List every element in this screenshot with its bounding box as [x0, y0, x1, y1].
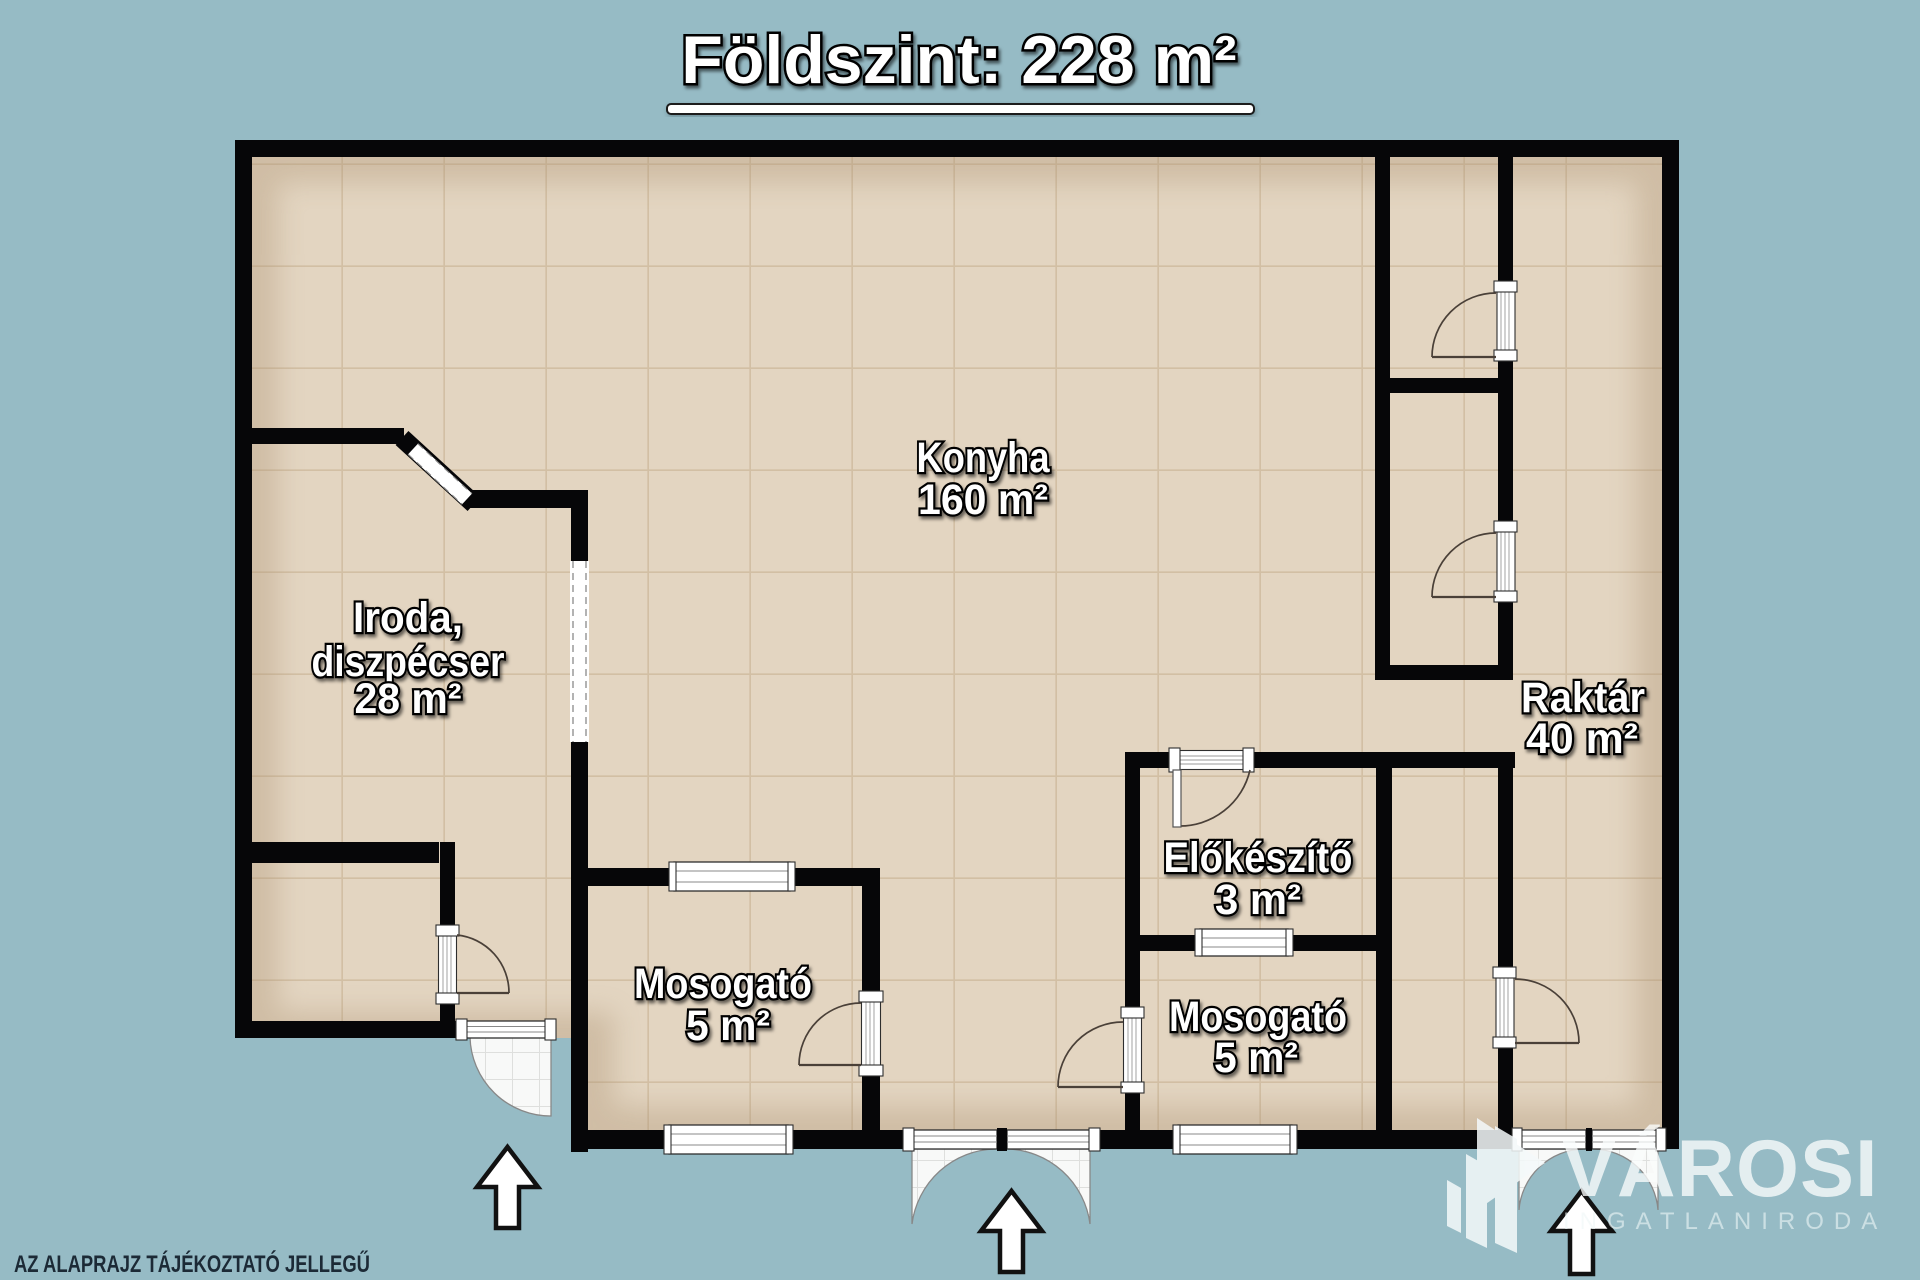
svg-text:Előkészítő: Előkészítő [1164, 834, 1353, 882]
svg-text:28 m²: 28 m² [355, 675, 462, 723]
svg-text:40 m²: 40 m² [1526, 715, 1638, 763]
svg-text:Földszint: 228 m²: Földszint: 228 m² [681, 22, 1236, 98]
svg-text:INGATLANIRODA: INGATLANIRODA [1563, 1208, 1887, 1235]
svg-text:VÁROSI: VÁROSI [1562, 1124, 1879, 1214]
svg-text:5 m²: 5 m² [1214, 1034, 1298, 1082]
svg-text:Mosogató: Mosogató [634, 960, 812, 1008]
svg-text:5 m²: 5 m² [686, 1002, 770, 1050]
svg-text:AZ ALAPRAJZ TÁJÉKOZTATÓ JELLEG: AZ ALAPRAJZ TÁJÉKOZTATÓ JELLEGŰ [14, 1250, 370, 1278]
svg-text:Iroda,: Iroda, [353, 594, 463, 642]
svg-text:Konyha: Konyha [917, 434, 1051, 482]
svg-text:3 m²: 3 m² [1215, 876, 1301, 924]
svg-text:160 m²: 160 m² [918, 476, 1048, 524]
